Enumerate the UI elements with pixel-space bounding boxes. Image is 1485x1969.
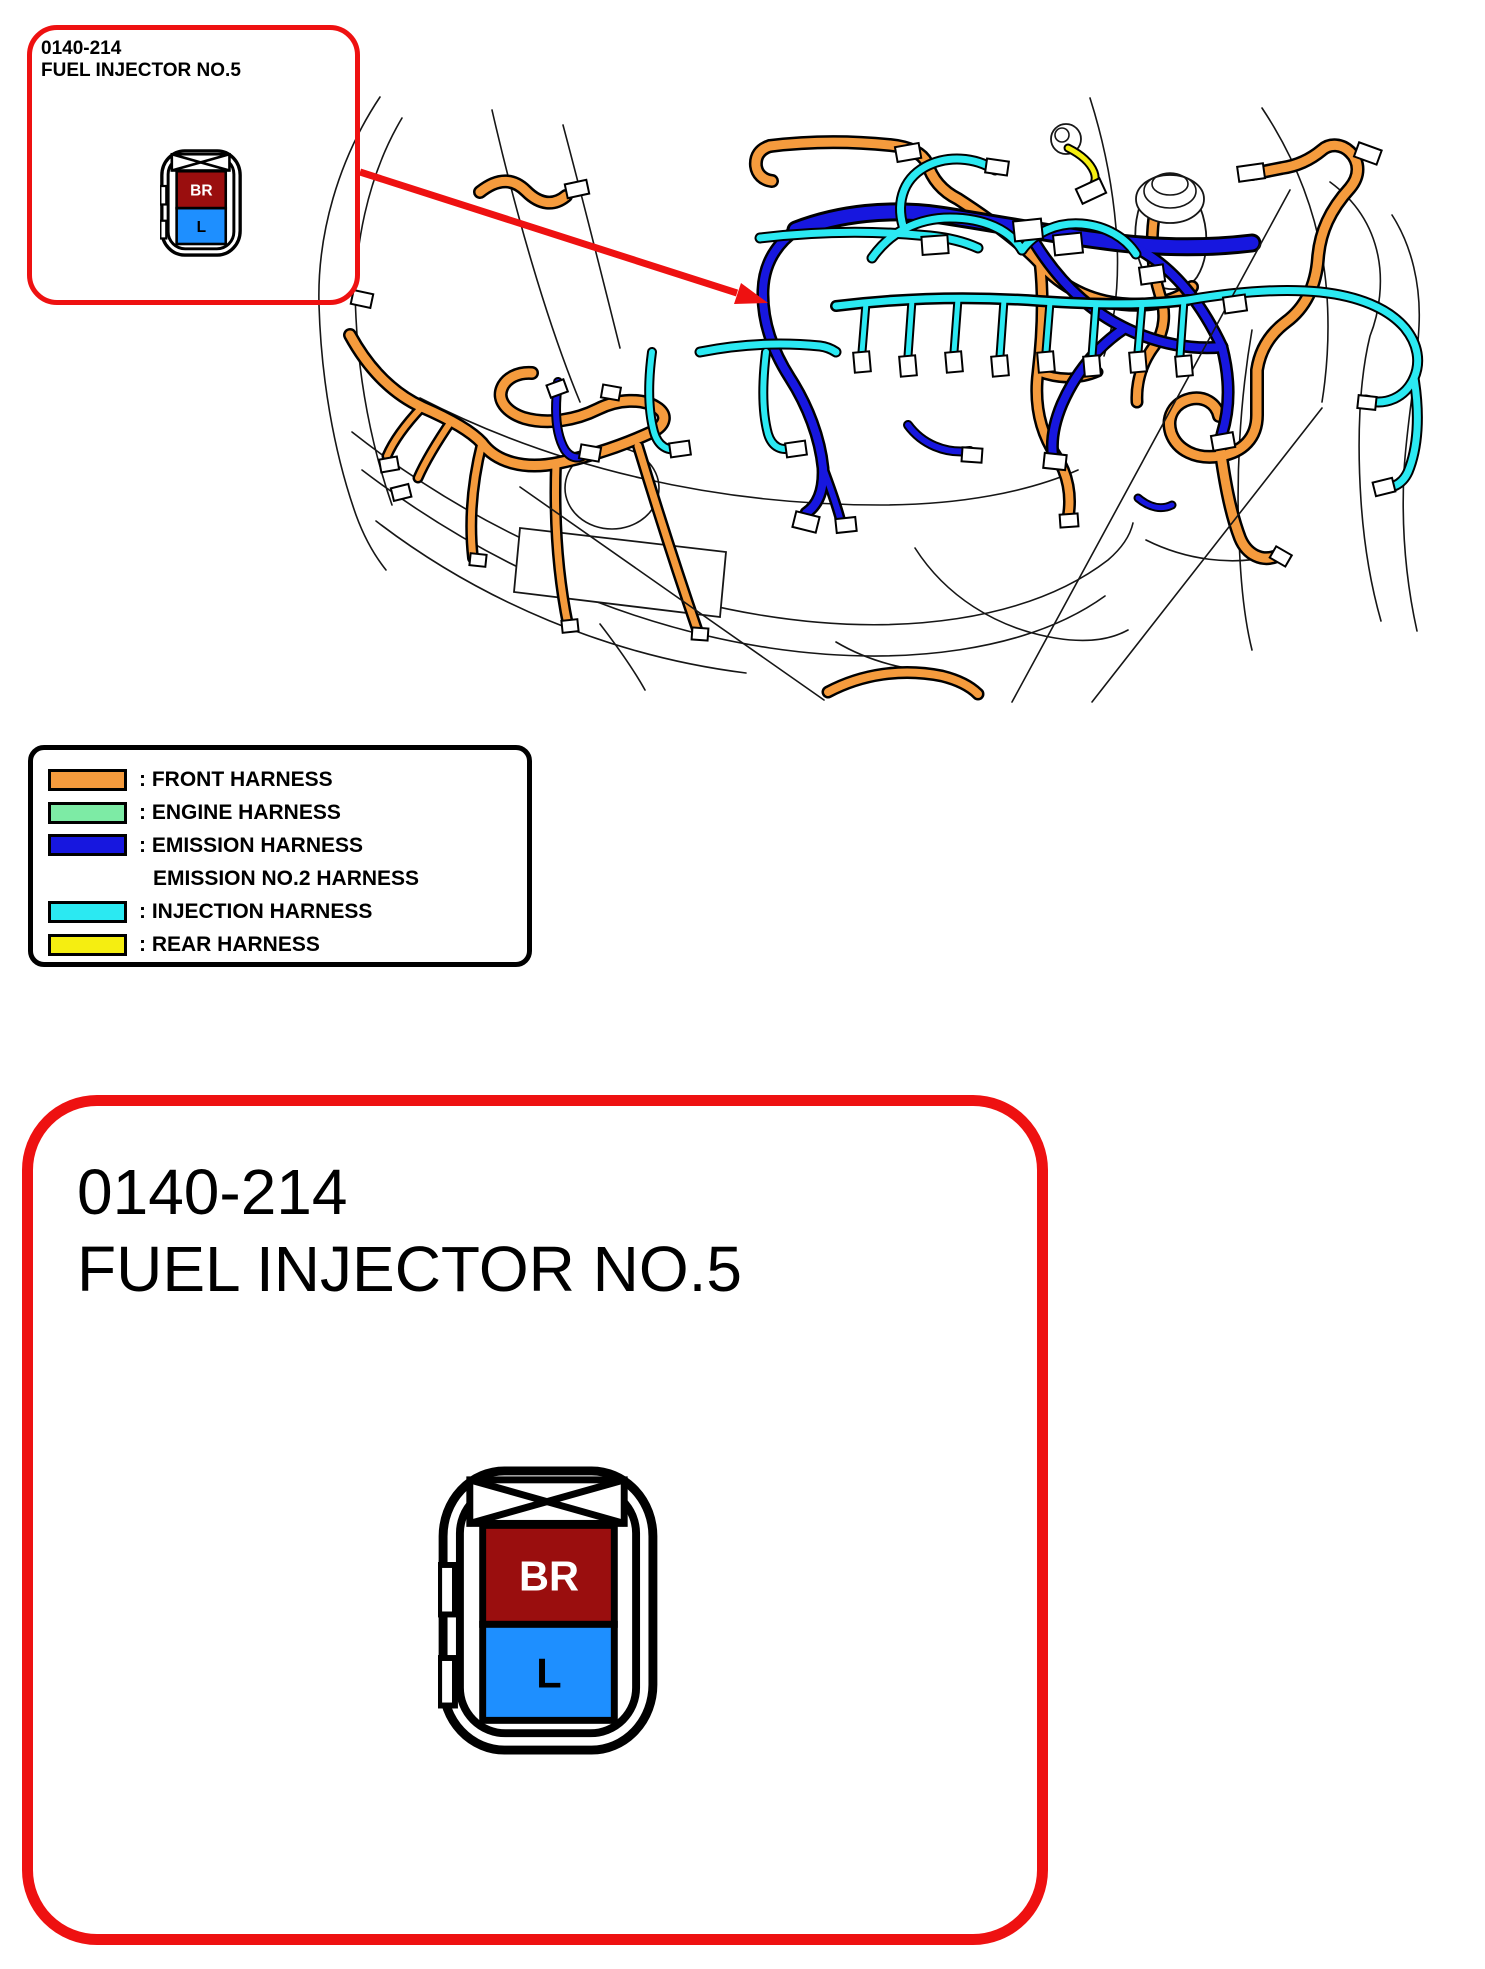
reservoir-rings bbox=[1136, 173, 1204, 223]
page: 0140-214 FUEL INJECTOR NO.5 BR L : FRONT… bbox=[0, 0, 1485, 1969]
legend-swatch-emission-harness bbox=[48, 834, 127, 856]
engine-bay-diagram bbox=[280, 85, 1485, 715]
svg-text:BR: BR bbox=[519, 1553, 579, 1600]
legend-item-emission-harness: : EMISSION HARNESS EMISSION NO.2 HARNESS bbox=[48, 829, 527, 895]
detail-name: FUEL INJECTOR NO.5 bbox=[77, 1231, 742, 1308]
svg-text:L: L bbox=[536, 1650, 561, 1697]
connector-icon: BR L bbox=[160, 149, 242, 257]
detail-panel: 0140-214 FUEL INJECTOR NO.5 BR L bbox=[22, 1095, 1048, 1945]
legend-swatch-engine-harness bbox=[48, 802, 127, 824]
legend-item-engine-harness: : ENGINE HARNESS bbox=[48, 796, 527, 829]
legend-item-rear-harness: : REAR HARNESS bbox=[48, 928, 527, 961]
detail-code: 0140-214 bbox=[77, 1154, 742, 1231]
svg-text:BR: BR bbox=[190, 183, 212, 200]
legend: : FRONT HARNESS : ENGINE HARNESS : EMISS… bbox=[28, 745, 532, 967]
callout-name: FUEL INJECTOR NO.5 bbox=[41, 60, 241, 82]
legend-item-front-harness: : FRONT HARNESS bbox=[48, 763, 527, 796]
front-harness-paths bbox=[350, 142, 1358, 694]
legend-item-injection-harness: : INJECTION HARNESS bbox=[48, 895, 527, 928]
svg-text:L: L bbox=[197, 219, 206, 236]
callout-code: 0140-214 bbox=[41, 38, 241, 60]
callout-box: 0140-214 FUEL INJECTOR NO.5 BR L bbox=[27, 25, 360, 305]
rear-harness-path bbox=[1051, 124, 1095, 189]
connector-diagram: BR L bbox=[438, 1466, 658, 1755]
legend-swatch-front-harness bbox=[48, 769, 127, 791]
legend-swatch-injection-harness bbox=[48, 901, 127, 923]
legend-swatch-rear-harness bbox=[48, 934, 127, 956]
